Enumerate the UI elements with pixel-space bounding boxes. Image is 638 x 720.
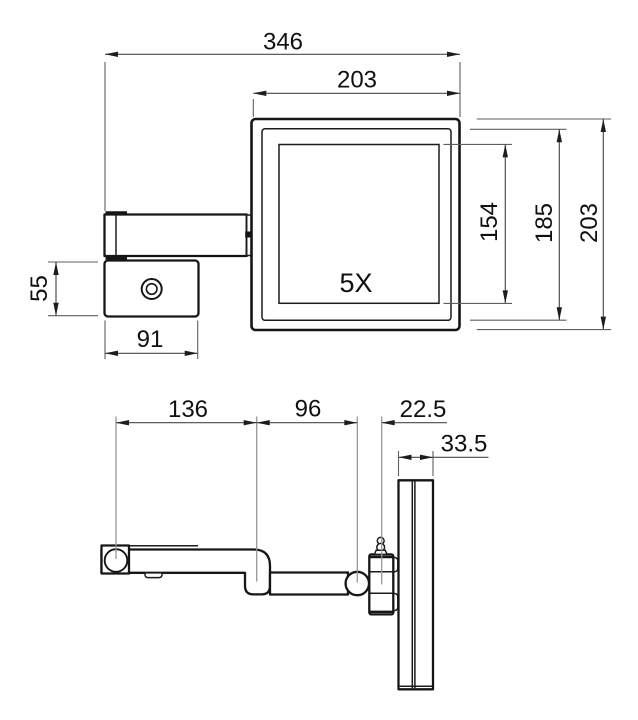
dim-label-glass-height: 154: [476, 202, 503, 242]
arrowhead: [557, 307, 562, 320]
arrowhead: [503, 144, 508, 157]
front-view: 5X 346 203: [26, 29, 611, 360]
arrowhead: [116, 420, 129, 425]
side-view: 136 96 22.5 33.5: [102, 395, 489, 689]
wall-bracket-front: [105, 258, 199, 316]
dim-bracket-height: 55: [26, 262, 98, 316]
arrowhead: [382, 420, 395, 425]
arrowhead: [53, 303, 58, 316]
dim-label-arm-first: 136: [168, 396, 208, 423]
dim-bracket-width: 91: [105, 321, 198, 360]
arm-bar: [105, 215, 247, 257]
dim-label-mirror-height: 203: [576, 203, 603, 243]
arrowhead: [601, 119, 606, 132]
arrowhead: [244, 420, 257, 425]
mirror-front: 5X: [252, 119, 460, 330]
arrowhead: [420, 455, 433, 460]
magnification-label: 5X: [339, 268, 372, 298]
dim-label-frame-height: 185: [531, 203, 558, 243]
arrowhead: [447, 52, 460, 57]
dim-label-overall-width: 346: [263, 29, 303, 56]
technical-drawing: 5X 346 203: [0, 0, 638, 720]
knob-base: [374, 550, 387, 554]
arrowhead: [105, 52, 118, 57]
dim-label-pivot-offset: 22.5: [400, 396, 447, 423]
arm-under-bump: [145, 573, 162, 578]
arrowhead: [557, 129, 562, 142]
mounting-screw-inner: [146, 284, 157, 295]
arrowhead: [601, 317, 606, 330]
arrowhead: [53, 262, 58, 275]
dim-pivot-offset: 22.5: [382, 396, 447, 426]
mirror-outer-frame: [252, 119, 460, 330]
pivot-post-side: [369, 537, 398, 614]
dim-panel-depth: 33.5: [399, 431, 489, 476]
drawing-canvas: 5X 346 203: [0, 0, 638, 720]
dim-mirror-width: 203: [253, 67, 460, 117]
dim-arm-first-segment: 136: [116, 396, 257, 426]
dim-label-mirror-width: 203: [337, 67, 377, 94]
dim-label-arm-second: 96: [295, 395, 322, 422]
lower-arm: [270, 573, 348, 595]
arrowhead: [344, 420, 357, 425]
dim-label-panel-depth: 33.5: [441, 431, 488, 458]
arrowhead: [257, 420, 270, 425]
mirror-panel-side: [399, 480, 434, 689]
arrowhead: [447, 91, 460, 96]
arrowhead: [253, 91, 266, 96]
arrowhead: [399, 455, 412, 460]
swing-arm-front: [105, 213, 254, 256]
dim-arm-second-segment: 96: [257, 395, 358, 425]
arrowhead: [503, 290, 508, 303]
dim-label-bracket-width: 91: [137, 326, 164, 353]
dim-label-bracket-height: 55: [26, 275, 53, 302]
panel-outline: [399, 480, 434, 689]
swing-arm-side: [102, 546, 369, 596]
arrowhead: [185, 351, 198, 356]
arrowhead: [105, 351, 118, 356]
